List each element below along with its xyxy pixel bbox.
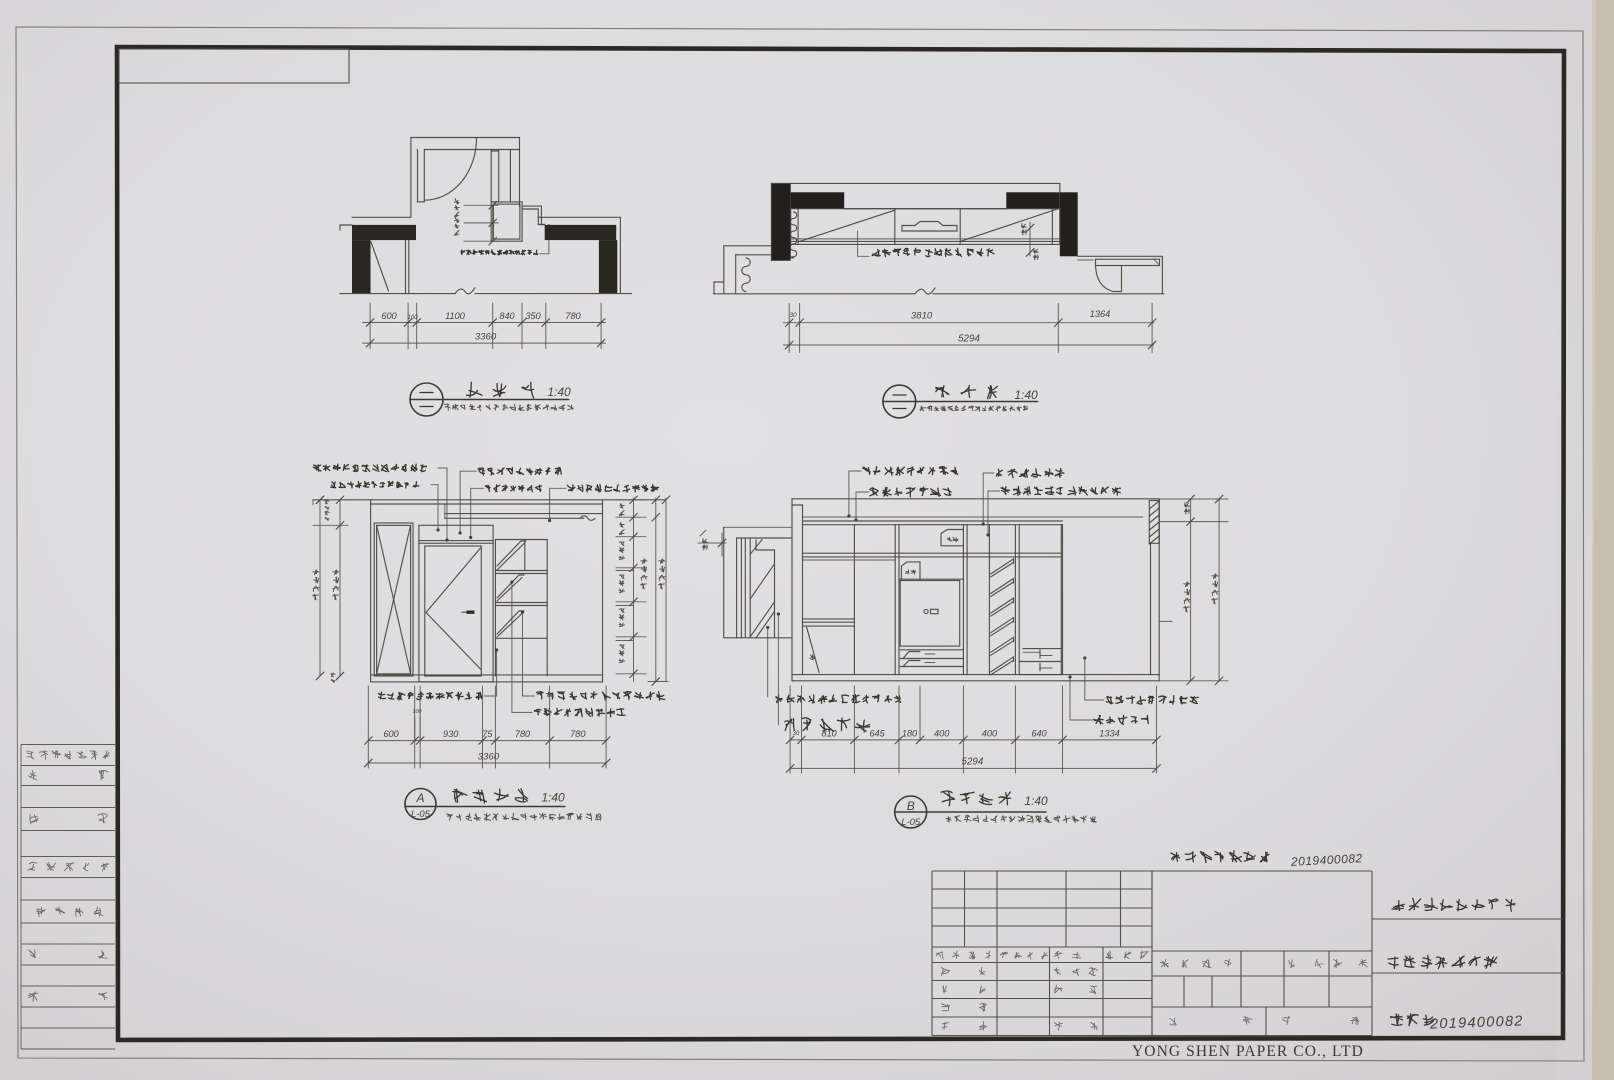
svg-text:2019400082: 2019400082 (1429, 1013, 1524, 1032)
svg-text:930: 930 (443, 729, 459, 739)
svg-text:780: 780 (565, 311, 581, 321)
svg-text:30: 30 (793, 731, 800, 737)
svg-text:1364: 1364 (1090, 309, 1110, 319)
svg-text:1:40: 1:40 (1024, 794, 1048, 808)
svg-text:B: B (907, 799, 915, 813)
svg-text:3360: 3360 (475, 332, 497, 343)
svg-text:L-05: L-05 (901, 817, 921, 828)
svg-text:780: 780 (570, 729, 586, 739)
svg-text:5294: 5294 (958, 334, 980, 345)
svg-text:3360: 3360 (478, 752, 500, 763)
svg-text:400: 400 (982, 729, 998, 739)
svg-text:780: 780 (515, 729, 531, 739)
svg-text:30: 30 (789, 312, 797, 319)
svg-text:100: 100 (407, 315, 418, 321)
svg-text:5294: 5294 (962, 757, 984, 768)
svg-text:YONG SHEN PAPER CO., LTD: YONG SHEN PAPER CO., LTD (1132, 1043, 1364, 1060)
svg-text:640: 640 (1031, 729, 1047, 739)
svg-text:600: 600 (383, 729, 399, 739)
svg-text:400: 400 (934, 729, 950, 739)
svg-text:180: 180 (902, 729, 918, 739)
svg-text:840: 840 (499, 311, 515, 321)
svg-text:3810: 3810 (911, 311, 933, 322)
svg-text:75: 75 (482, 729, 493, 739)
svg-text:L-05: L-05 (411, 809, 431, 820)
svg-text:1:40: 1:40 (547, 385, 571, 399)
svg-text:1:40: 1:40 (1014, 388, 1038, 402)
svg-text:1:40: 1:40 (541, 791, 565, 805)
svg-text:645: 645 (869, 729, 885, 739)
svg-text:1100: 1100 (445, 311, 466, 321)
svg-text:1334: 1334 (1099, 729, 1119, 739)
svg-text:810: 810 (821, 729, 837, 739)
svg-text:100: 100 (412, 709, 422, 715)
svg-text:350: 350 (525, 311, 541, 321)
svg-text:600: 600 (381, 311, 397, 321)
svg-text:A: A (415, 791, 424, 805)
